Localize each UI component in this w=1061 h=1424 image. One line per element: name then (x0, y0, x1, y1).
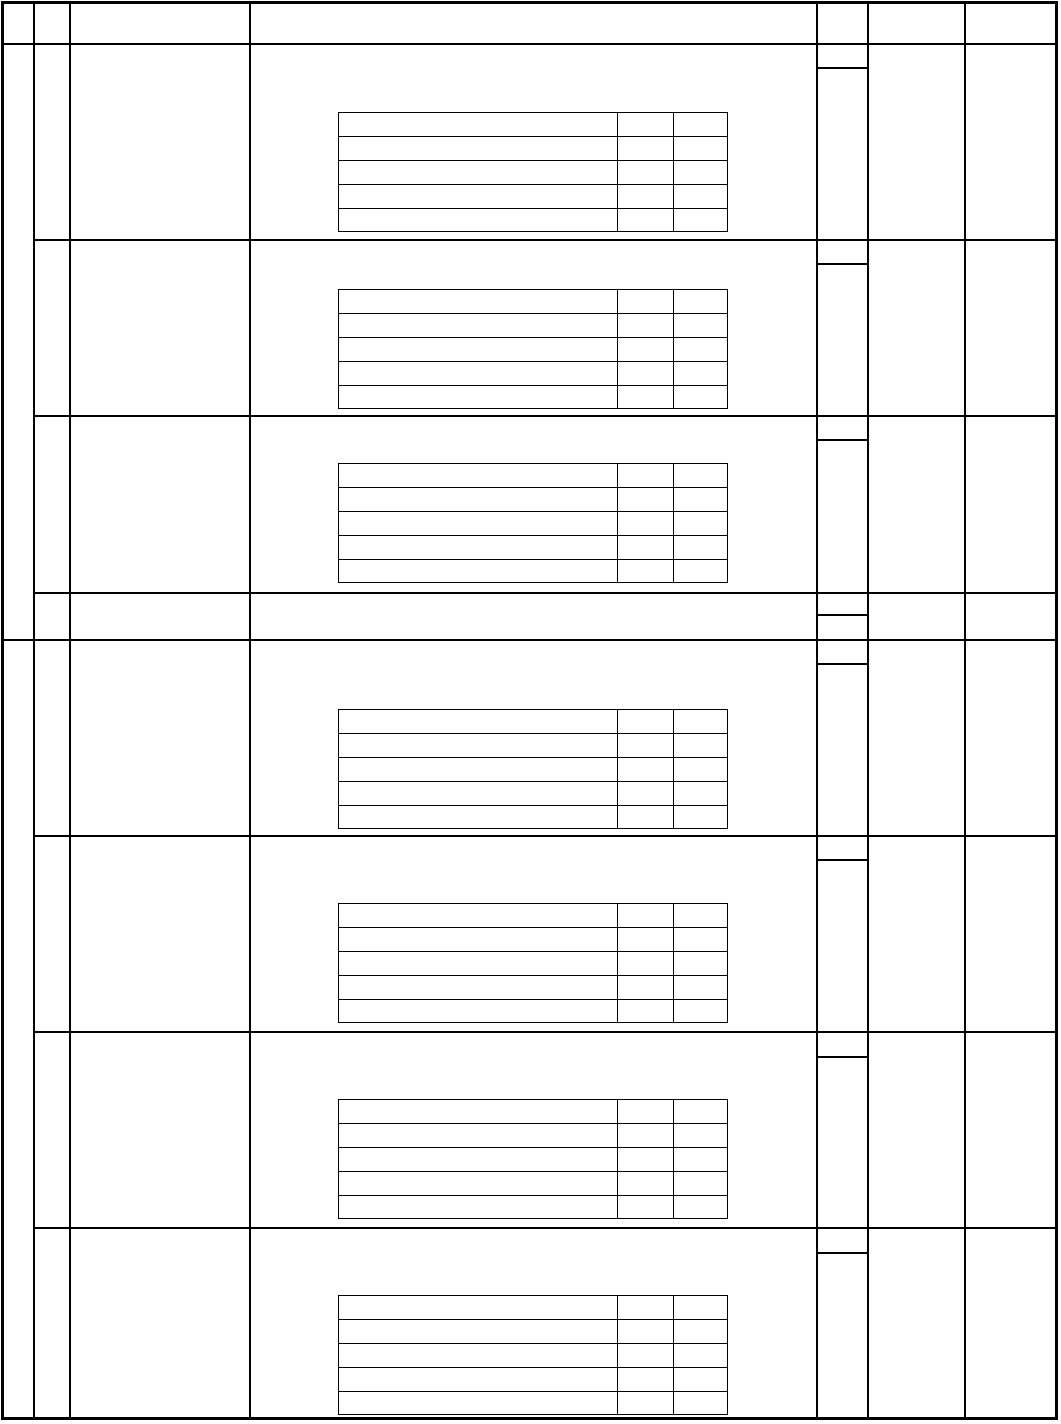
inner-table-2-cell-r5-c2 (617, 386, 673, 410)
inner-table-6-cell-r5-c3 (673, 1196, 729, 1220)
inner-table-5-cell-r4-c1 (339, 976, 617, 1000)
inner-table-4-cell-r5-c2 (617, 806, 673, 830)
inner-table-7-cell-r1-c2 (617, 1296, 673, 1320)
inner-table-1-cell-r2-c1 (339, 137, 617, 161)
column-divider-1 (33, 1, 35, 1420)
inner-table-6-cell-r2-c1 (339, 1124, 617, 1148)
column-divider-6 (964, 1, 966, 1420)
inner-table-1-cell-r1-c3 (673, 113, 729, 137)
inner-table-5-cell-r4-c3 (673, 976, 729, 1000)
inner-table-4-cell-r3-c1 (339, 758, 617, 782)
inner-table-1-cell-r2-c2 (617, 137, 673, 161)
inner-table-6-cell-r1-c3 (673, 1100, 729, 1124)
inner-table-1-cell-r3-c3 (673, 161, 729, 185)
inner-table-2-cell-r4-c1 (339, 362, 617, 386)
inner-table-3-cell-r3-c1 (339, 512, 617, 536)
inner-table-6-cell-r1-c2 (617, 1100, 673, 1124)
inner-table-2-cell-r3-c2 (617, 338, 673, 362)
col5-subcell-divider-5 (817, 663, 868, 665)
inner-table-6-cell-r2-c2 (617, 1124, 673, 1148)
inner-table-5-cell-r5-c3 (673, 1000, 729, 1024)
inner-table-1-cell-r4-c3 (673, 185, 729, 209)
inner-table-4-cell-r5-c1 (339, 806, 617, 830)
inner-table-7-cell-r4-c1 (339, 1368, 617, 1392)
inner-table-3-cell-r2-c3 (673, 488, 729, 512)
inner-table-1-cell-r5-c3 (673, 209, 729, 233)
inner-table-4-cell-r3-c2 (617, 758, 673, 782)
inner-table-5-cell-r2-c2 (617, 928, 673, 952)
inner-table-2-cell-r2-c2 (617, 314, 673, 338)
col5-subcell-divider-1 (817, 67, 868, 69)
inner-table-7-cell-r2-c3 (673, 1320, 729, 1344)
inner-table-6-cell-r3-c2 (617, 1148, 673, 1172)
column-divider-2 (69, 1, 71, 1420)
inner-table-4-cell-r4-c3 (673, 782, 729, 806)
inner-table-7-cell-r5-c2 (617, 1392, 673, 1416)
inner-table-2-cell-r1-c1 (339, 290, 617, 314)
inner-table-7-cell-r5-c1 (339, 1392, 617, 1416)
inner-table-7-cell-r1-c3 (673, 1296, 729, 1320)
inner-table-3-cell-r4-c3 (673, 536, 729, 560)
inner-table-6-cell-r5-c2 (617, 1196, 673, 1220)
inner-table-1-cell-r3-c2 (617, 161, 673, 185)
inner-table-3-cell-r3-c2 (617, 512, 673, 536)
inner-table-2-cell-r4-c3 (673, 362, 729, 386)
inner-table-7-cell-r1-c1 (339, 1296, 617, 1320)
inner-table-6 (338, 1099, 728, 1219)
inner-table-1 (338, 112, 728, 232)
inner-table-3-cell-r1-c3 (673, 464, 729, 488)
inner-table-5-cell-r1-c2 (617, 904, 673, 928)
col5-subcell-divider-6 (817, 859, 868, 861)
col5-subcell-divider-7 (817, 1056, 868, 1058)
inner-table-2-cell-r3-c1 (339, 338, 617, 362)
inner-table-5-cell-r2-c1 (339, 928, 617, 952)
col5-subcell-divider-8 (817, 1252, 868, 1254)
inner-table-2-cell-r5-c1 (339, 386, 617, 410)
inner-table-4-cell-r2-c3 (673, 734, 729, 758)
column-divider-4 (816, 1, 818, 1420)
col5-subcell-divider-4 (817, 614, 868, 616)
col5-subcell-divider-2 (817, 263, 868, 265)
inner-table-5 (338, 903, 728, 1023)
row-divider-4 (34, 835, 1058, 837)
inner-table-1-cell-r4-c1 (339, 185, 617, 209)
inner-table-3-cell-r1-c2 (617, 464, 673, 488)
row-divider-1 (34, 239, 1058, 241)
inner-table-2-cell-r3-c3 (673, 338, 729, 362)
inner-table-3 (338, 463, 728, 583)
inner-table-3-cell-r1-c1 (339, 464, 617, 488)
inner-table-5-cell-r5-c2 (617, 1000, 673, 1024)
inner-table-1-cell-r5-c2 (617, 209, 673, 233)
inner-table-2-cell-r5-c3 (673, 386, 729, 410)
section-divider (1, 639, 1058, 641)
inner-table-5-cell-r4-c2 (617, 976, 673, 1000)
inner-table-6-cell-r3-c3 (673, 1148, 729, 1172)
row-divider-3 (34, 592, 1058, 594)
inner-table-7-cell-r2-c2 (617, 1320, 673, 1344)
inner-table-3-cell-r3-c3 (673, 512, 729, 536)
inner-table-7-cell-r3-c3 (673, 1344, 729, 1368)
inner-table-3-cell-r2-c1 (339, 488, 617, 512)
inner-table-2-cell-r1-c3 (673, 290, 729, 314)
inner-table-4-cell-r2-c2 (617, 734, 673, 758)
inner-table-2-cell-r2-c1 (339, 314, 617, 338)
inner-table-7 (338, 1295, 728, 1415)
inner-table-4-cell-r3-c3 (673, 758, 729, 782)
inner-table-4-cell-r1-c1 (339, 710, 617, 734)
inner-table-4-cell-r4-c2 (617, 782, 673, 806)
inner-table-1-cell-r3-c1 (339, 161, 617, 185)
inner-table-7-cell-r3-c2 (617, 1344, 673, 1368)
inner-table-5-cell-r3-c1 (339, 952, 617, 976)
inner-table-6-cell-r1-c1 (339, 1100, 617, 1124)
inner-table-3-cell-r4-c1 (339, 536, 617, 560)
inner-table-4-cell-r2-c1 (339, 734, 617, 758)
inner-table-5-cell-r3-c2 (617, 952, 673, 976)
inner-table-1-cell-r2-c3 (673, 137, 729, 161)
inner-table-7-cell-r5-c3 (673, 1392, 729, 1416)
inner-table-2-cell-r4-c2 (617, 362, 673, 386)
inner-table-4-cell-r1-c3 (673, 710, 729, 734)
inner-table-2-cell-r2-c3 (673, 314, 729, 338)
inner-table-6-cell-r4-c1 (339, 1172, 617, 1196)
row-divider-2 (34, 415, 1058, 417)
col5-subcell-divider-3 (817, 439, 868, 441)
inner-table-3-cell-r4-c2 (617, 536, 673, 560)
inner-table-5-cell-r1-c3 (673, 904, 729, 928)
inner-table-7-cell-r3-c1 (339, 1344, 617, 1368)
document-page (0, 0, 1061, 1424)
inner-table-1-cell-r1-c2 (617, 113, 673, 137)
inner-table-6-cell-r4-c2 (617, 1172, 673, 1196)
inner-table-2-cell-r1-c2 (617, 290, 673, 314)
inner-table-4-cell-r1-c2 (617, 710, 673, 734)
column-divider-5 (867, 1, 869, 1420)
inner-table-7-cell-r4-c3 (673, 1368, 729, 1392)
inner-table-5-cell-r2-c3 (673, 928, 729, 952)
inner-table-7-cell-r4-c2 (617, 1368, 673, 1392)
inner-table-5-cell-r1-c1 (339, 904, 617, 928)
inner-table-5-cell-r3-c3 (673, 952, 729, 976)
inner-table-4-cell-r4-c1 (339, 782, 617, 806)
inner-table-1-cell-r4-c2 (617, 185, 673, 209)
inner-table-4-cell-r5-c3 (673, 806, 729, 830)
row-divider-6 (34, 1227, 1058, 1229)
inner-table-1-cell-r5-c1 (339, 209, 617, 233)
inner-table-2 (338, 289, 728, 409)
inner-table-5-cell-r5-c1 (339, 1000, 617, 1024)
inner-table-6-cell-r2-c3 (673, 1124, 729, 1148)
inner-table-6-cell-r5-c1 (339, 1196, 617, 1220)
inner-table-3-cell-r5-c1 (339, 560, 617, 584)
inner-table-6-cell-r3-c1 (339, 1148, 617, 1172)
inner-table-4 (338, 709, 728, 829)
inner-table-3-cell-r2-c2 (617, 488, 673, 512)
inner-table-6-cell-r4-c3 (673, 1172, 729, 1196)
inner-table-1-cell-r1-c1 (339, 113, 617, 137)
header-divider (1, 43, 1058, 45)
inner-table-7-cell-r2-c1 (339, 1320, 617, 1344)
row-divider-5 (34, 1031, 1058, 1033)
inner-table-3-cell-r5-c2 (617, 560, 673, 584)
inner-table-3-cell-r5-c3 (673, 560, 729, 584)
column-divider-3 (249, 1, 251, 1420)
